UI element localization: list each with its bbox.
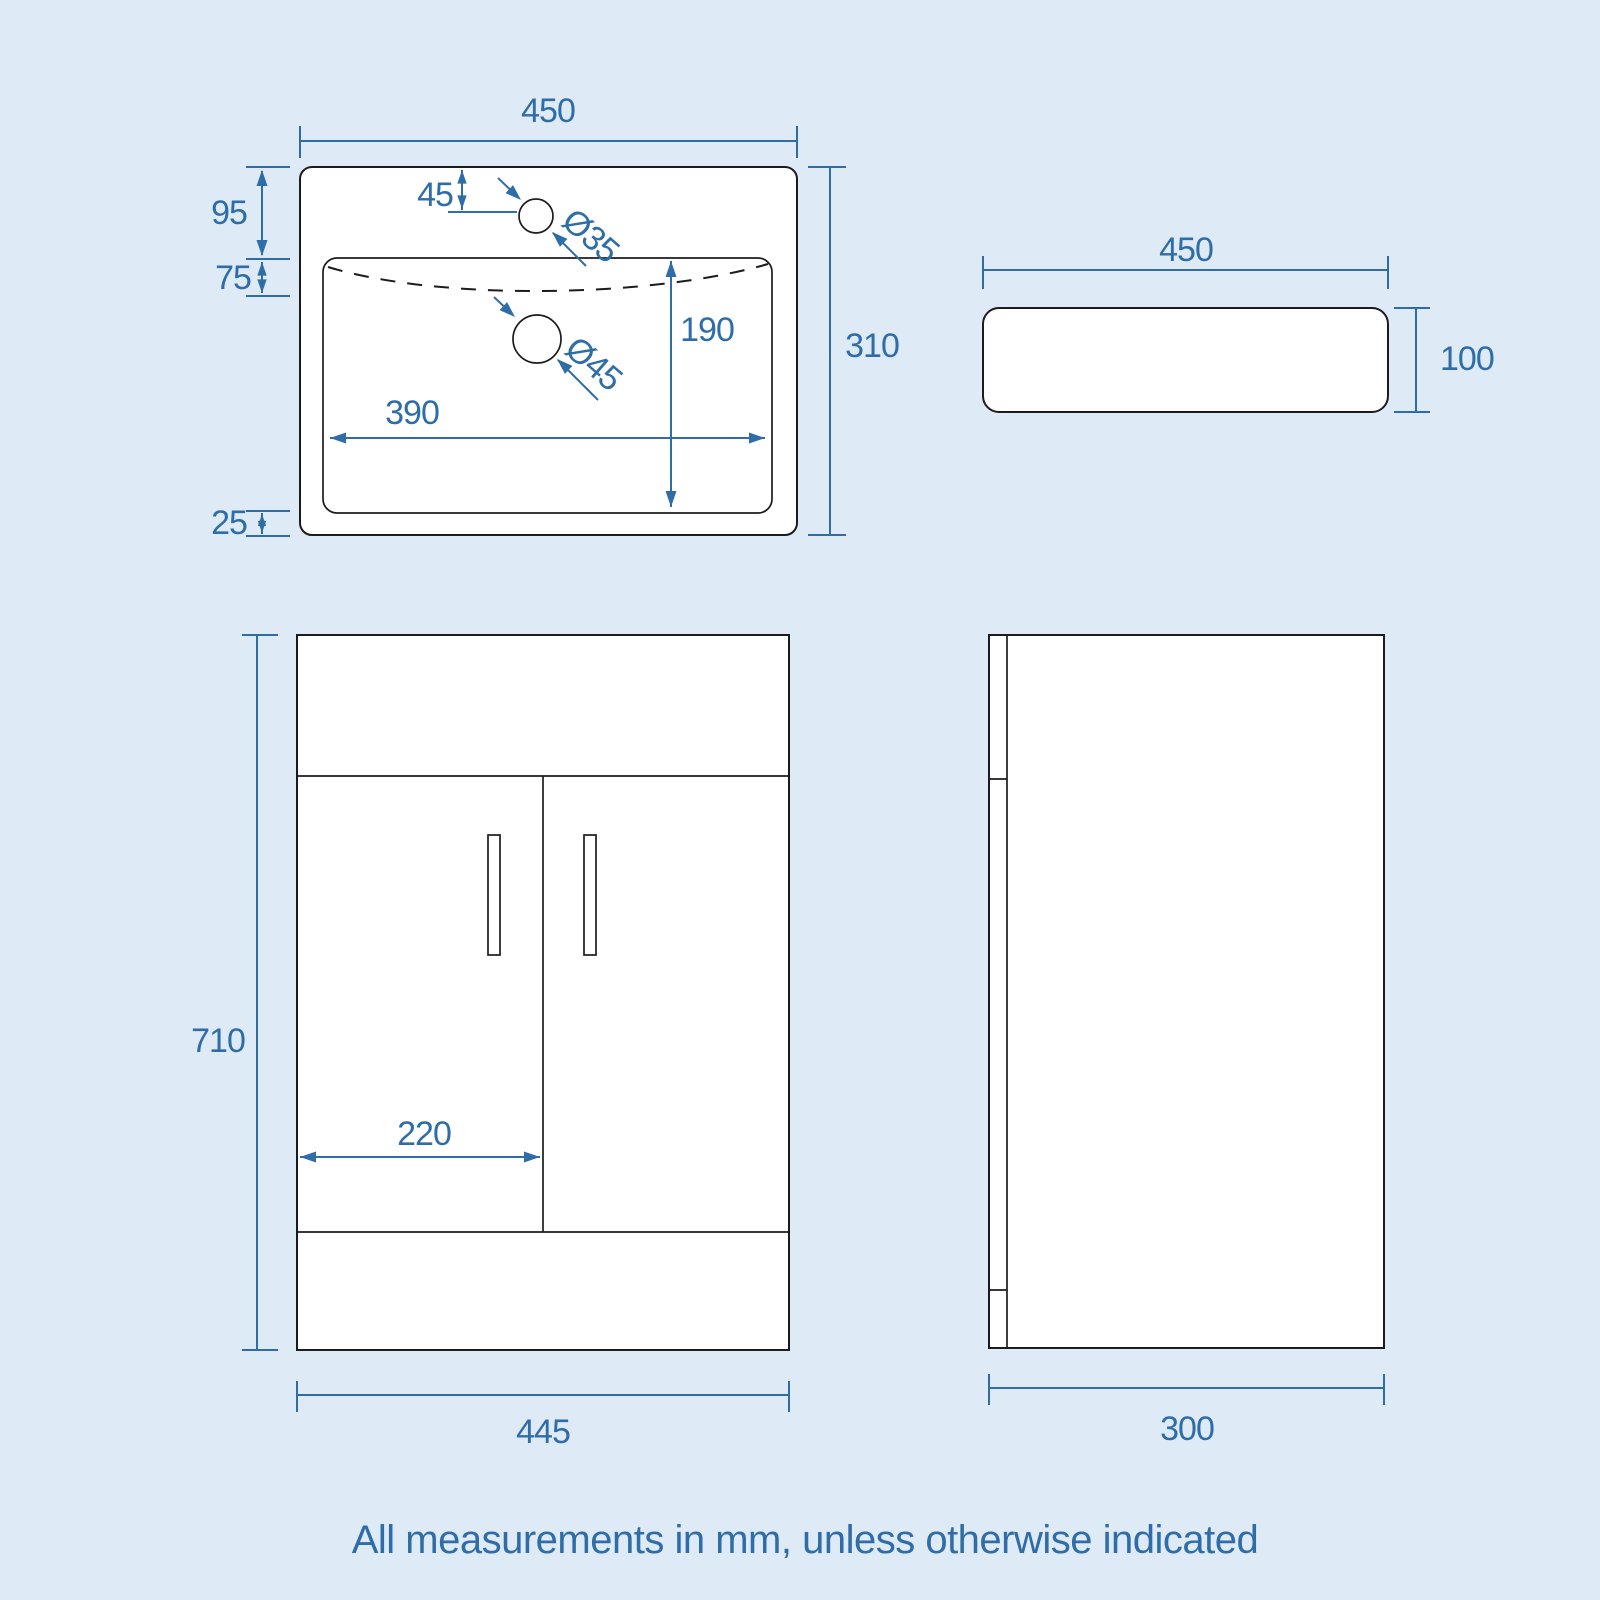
dim-bowl-depth-label: 190: [680, 311, 734, 349]
basin-side-view: 450 100: [983, 231, 1494, 412]
cabinet-front-view: 710 220 445: [191, 635, 789, 1451]
left-door-handle: [488, 835, 500, 955]
dim-cabinet-width-445: 445: [297, 1381, 789, 1451]
dim-basin-side-height-label: 100: [1440, 340, 1494, 378]
dim-basin-width-label: 450: [521, 92, 575, 130]
dim-cabinet-height-710: 710: [191, 635, 278, 1350]
dim-bowl-lip-label: 75: [215, 259, 251, 297]
dim-basin-side-height-100: 100: [1394, 308, 1494, 412]
dim-cabinet-height-label: 710: [191, 1022, 245, 1060]
dim-basin-depth-label: 310: [845, 327, 899, 365]
dim-basin-side-width-450: 450: [983, 231, 1388, 289]
dim-cabinet-width-label: 445: [516, 1413, 570, 1451]
technical-drawing-page: 450 310 95 75: [0, 0, 1600, 1600]
dim-bowl-to-front-label: 25: [211, 504, 247, 542]
waste-hole: [513, 315, 561, 363]
cabinet-side-view: 300: [989, 635, 1384, 1448]
cabinet-side-outline: [989, 635, 1384, 1348]
right-door-handle: [584, 835, 596, 955]
dim-basin-side-width-label: 450: [1159, 231, 1213, 269]
dim-rim-to-bowl-95: 95: [211, 167, 290, 259]
basin-bowl-outline: [323, 258, 772, 513]
dim-cabinet-depth-300: 300: [989, 1374, 1384, 1448]
measurement-units-footnote: All measurements in mm, unless otherwise…: [352, 1518, 1259, 1562]
dim-rim-to-bowl-label: 95: [211, 194, 247, 232]
dim-cabinet-depth-label: 300: [1160, 1410, 1214, 1448]
basin-top-view: 450 310 95 75: [211, 92, 899, 542]
basin-side-outline: [983, 308, 1388, 412]
dim-bowl-to-front-25: 25: [211, 504, 290, 542]
tap-hole: [519, 199, 553, 233]
dim-door-width-label: 220: [397, 1115, 451, 1153]
dim-basin-width: 450: [300, 92, 797, 158]
dim-bowl-width-label: 390: [385, 394, 439, 432]
dim-basin-depth: 310: [808, 167, 899, 535]
dim-bowl-lip-75: 75: [215, 259, 290, 297]
dim-tap-inset-label: 45: [417, 176, 453, 214]
vanity-basin-dimension-drawing: 450 310 95 75: [0, 0, 1600, 1600]
